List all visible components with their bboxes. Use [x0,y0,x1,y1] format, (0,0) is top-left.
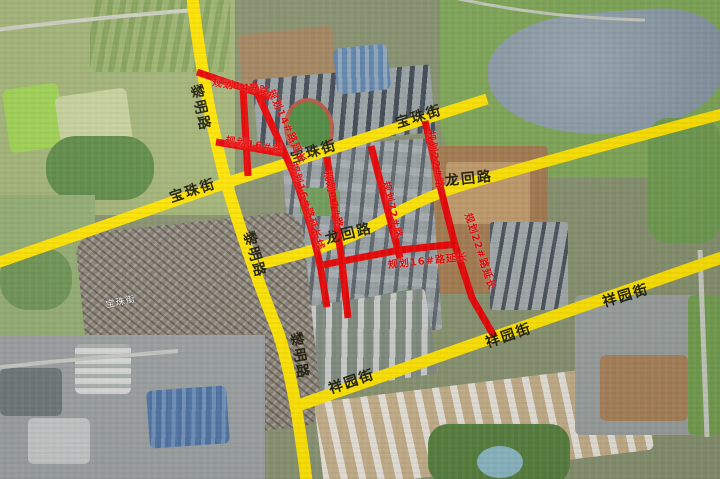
planned-label-14: 规划14#路 [211,79,270,98]
road-label-longhui-2: 龙回路 [444,170,493,189]
road-label-liming-2: 黎明路 [241,230,268,280]
planned-label-17: 规划17#路 [321,170,343,229]
planned-label-22: 规划22#路 [424,130,444,189]
road-label-xiangyuan-1: 祥园街 [327,368,377,397]
planned-label-16-ext-east: 规划16#路延长 [388,253,469,271]
road-labels: 黎明路 黎明路 黎明路 宝珠街 宝珠街 宝珠街 龙回路 龙回路 祥园街 祥园街 … [0,0,720,479]
road-label-liming-1: 黎明路 [188,83,212,133]
planned-label-16: 规划16#路 [224,137,283,156]
planned-label-72: 规划72#路 [380,180,403,239]
satellite-map[interactable]: 黎明路 黎明路 黎明路 宝珠街 宝珠街 宝珠街 龙回路 龙回路 祥园街 祥园街 … [0,0,720,479]
road-label-xiangyuan-3: 祥园街 [601,282,651,309]
road-label-xiangyuan-2: 祥园街 [484,322,534,351]
basemap-label-baozhu: 宝珠街 [105,295,136,310]
road-label-liming-3: 黎明路 [288,331,310,381]
planned-label-14-ext: 规划14#路延长 [265,88,307,165]
road-label-baozhu-3: 宝珠街 [394,103,444,130]
road-label-baozhu-1: 宝珠街 [168,177,218,205]
planned-label-16-ext-line: 规划16#路延长线 [287,162,325,252]
